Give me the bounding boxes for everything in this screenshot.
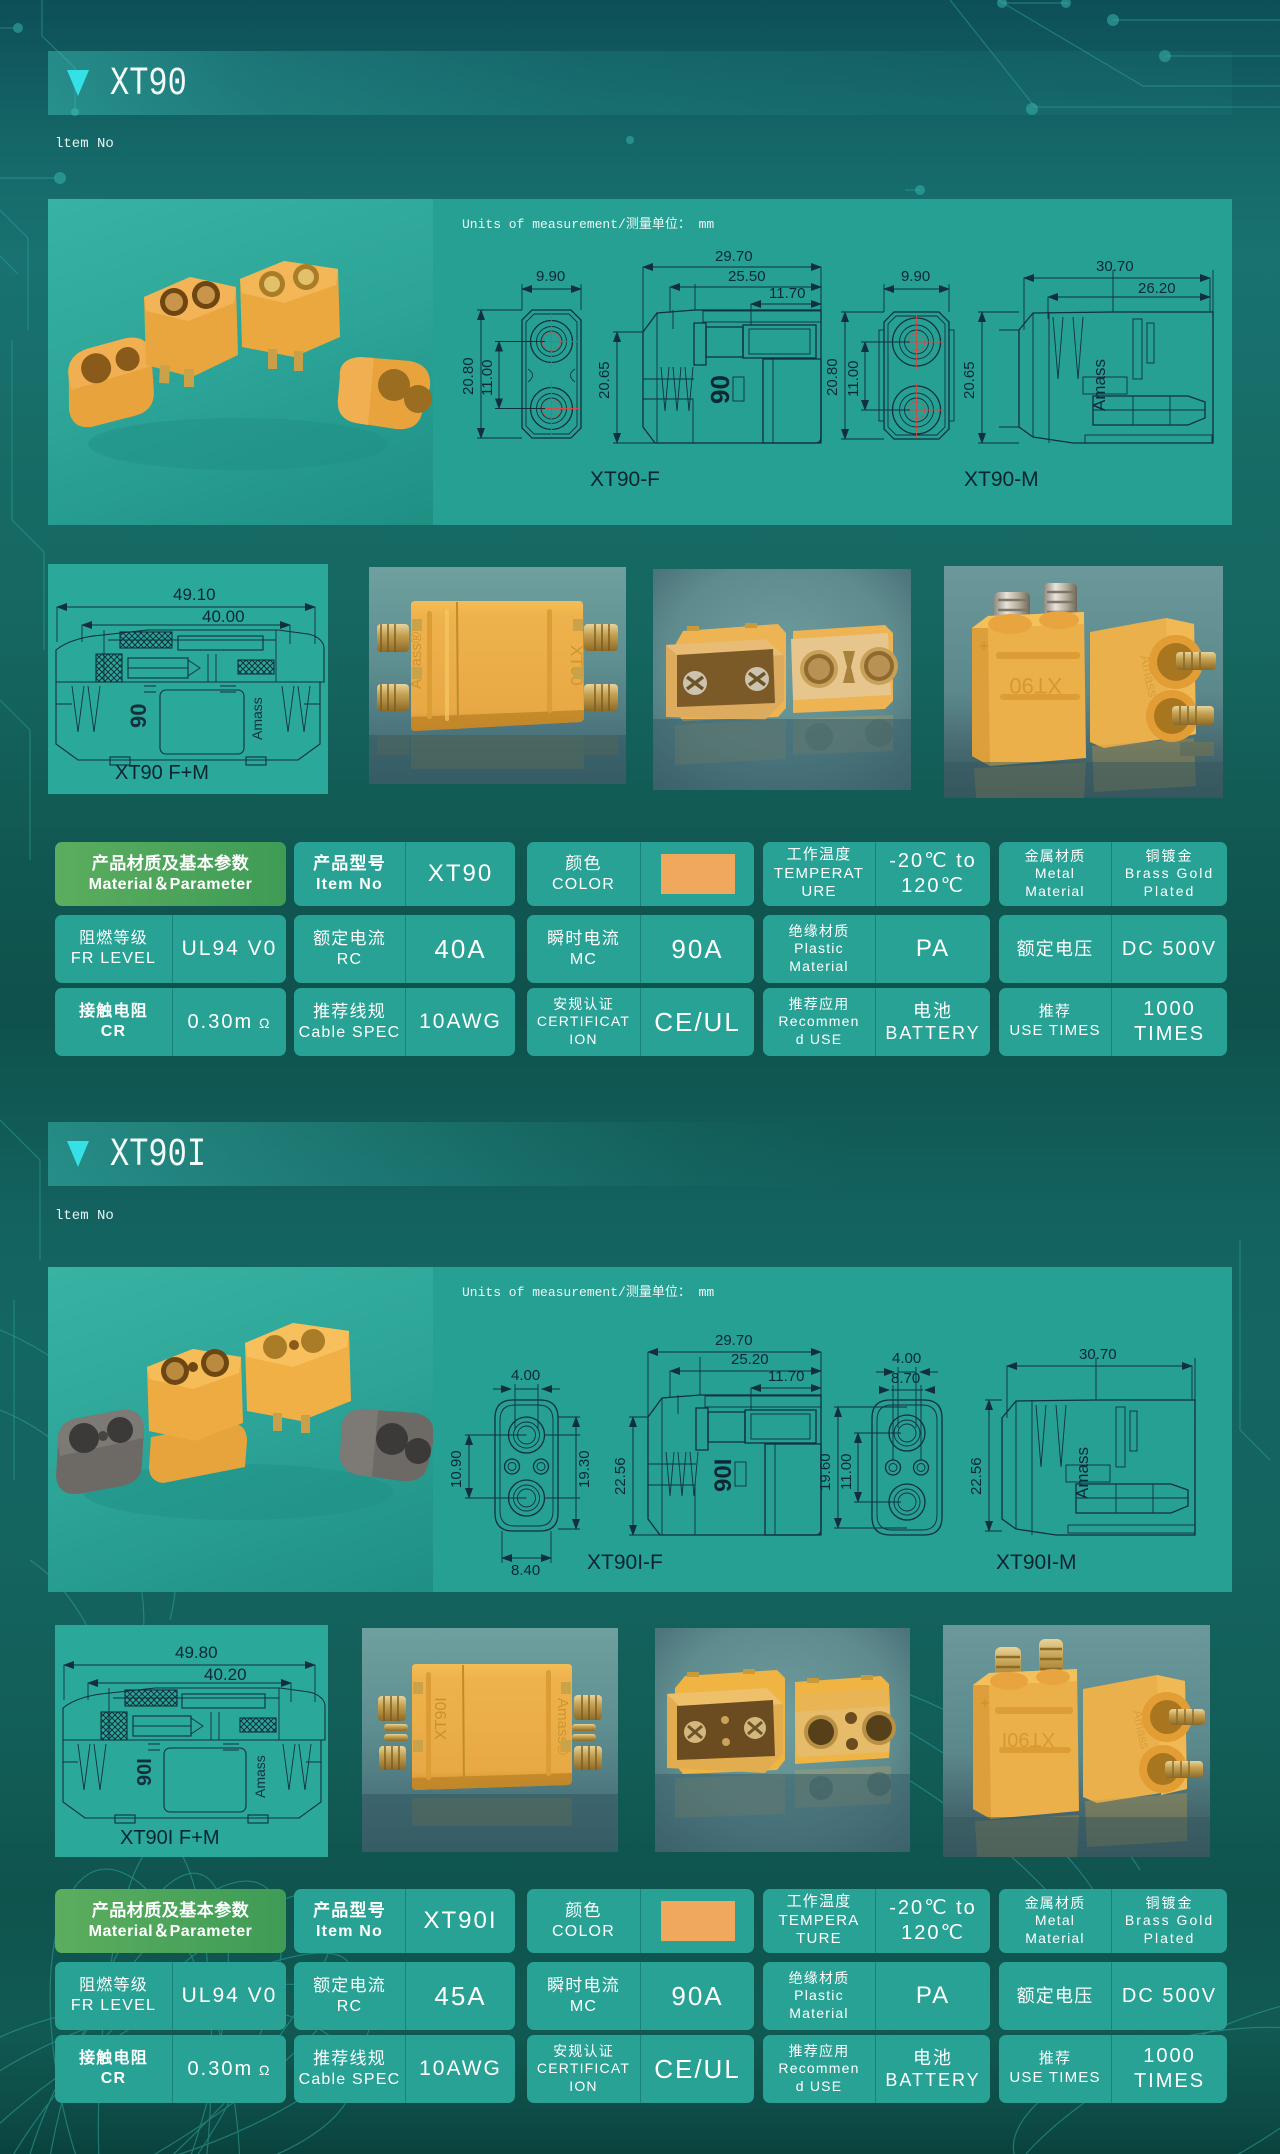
svg-text:25.50: 25.50 xyxy=(728,268,766,285)
svg-text:29.70: 29.70 xyxy=(715,248,753,265)
svg-text:19.30: 19.30 xyxy=(576,1450,593,1488)
svg-text:90I: 90I xyxy=(710,1459,737,1492)
svg-text:Amass®: Amass® xyxy=(408,632,425,689)
svg-text:11.70: 11.70 xyxy=(769,285,805,302)
svg-text:90: 90 xyxy=(126,704,151,728)
svg-text:20.65: 20.65 xyxy=(596,361,613,399)
svg-text:XT90: XT90 xyxy=(567,645,586,686)
svg-text:40.00: 40.00 xyxy=(202,607,245,626)
svg-text:90: 90 xyxy=(705,375,735,404)
svg-text:10.90: 10.90 xyxy=(448,1450,465,1488)
svg-text:90I: 90I xyxy=(134,1758,156,1786)
svg-text:11.00: 11.00 xyxy=(479,360,496,396)
svg-text:11.70: 11.70 xyxy=(768,1368,804,1385)
svg-text:11.00: 11.00 xyxy=(838,1454,855,1490)
svg-text:9.90: 9.90 xyxy=(901,268,930,285)
svg-text:Amass: Amass xyxy=(252,1755,268,1798)
svg-text:11.00: 11.00 xyxy=(845,361,862,397)
svg-text:25.20: 25.20 xyxy=(731,1351,769,1368)
svg-text:40.20: 40.20 xyxy=(204,1665,247,1684)
svg-text:26.20: 26.20 xyxy=(1138,280,1176,297)
svg-text:XT90I: XT90I xyxy=(1002,1728,1055,1750)
svg-text:4.00: 4.00 xyxy=(511,1367,540,1384)
svg-text:22.56: 22.56 xyxy=(968,1457,985,1495)
svg-text:4.00: 4.00 xyxy=(892,1350,921,1367)
svg-text:20.80: 20.80 xyxy=(460,357,477,395)
svg-text:8.40: 8.40 xyxy=(511,1562,540,1579)
svg-text:30.70: 30.70 xyxy=(1096,258,1134,275)
svg-text:29.70: 29.70 xyxy=(715,1332,753,1349)
svg-text:8.70: 8.70 xyxy=(891,1370,920,1387)
svg-text:49.10: 49.10 xyxy=(173,585,216,604)
svg-text:49.80: 49.80 xyxy=(175,1643,218,1662)
svg-text:Amass: Amass xyxy=(249,697,265,740)
svg-text:19.60: 19.60 xyxy=(817,1453,834,1491)
svg-text:9.90: 9.90 xyxy=(536,268,565,285)
svg-text:30.70: 30.70 xyxy=(1079,1346,1117,1363)
svg-text:22.56: 22.56 xyxy=(612,1457,629,1495)
svg-text:20.65: 20.65 xyxy=(961,361,978,399)
svg-text:20.80: 20.80 xyxy=(824,358,841,396)
svg-text:XT90I: XT90I xyxy=(433,1697,450,1740)
